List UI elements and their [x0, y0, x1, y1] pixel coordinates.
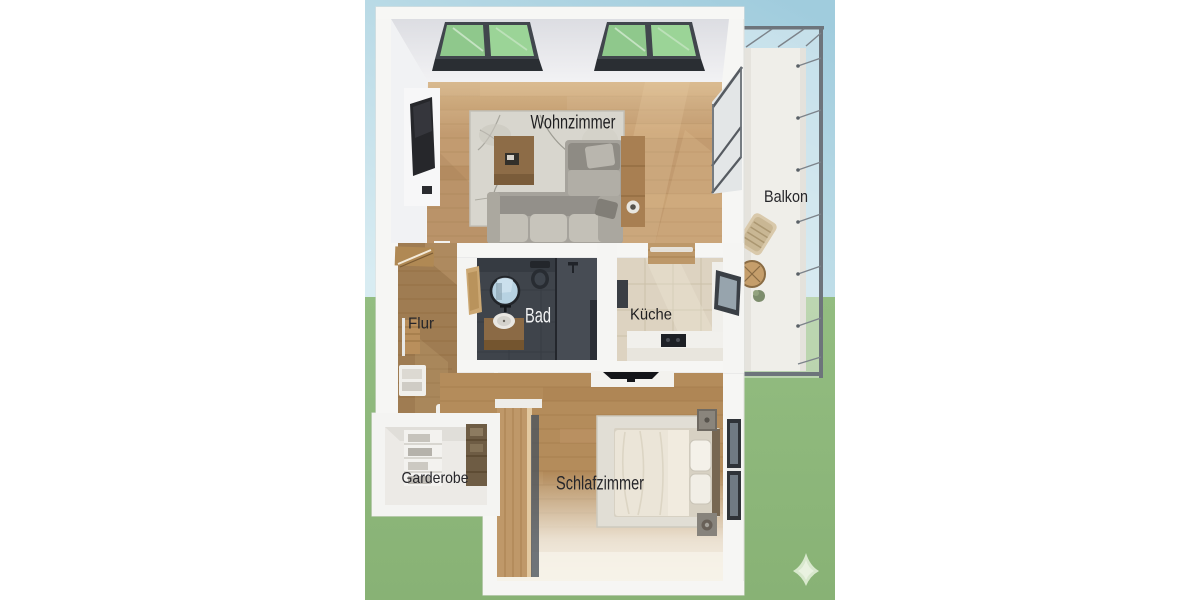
svg-text:Balkon: Balkon	[764, 188, 808, 206]
svg-text:Schlafzimmer: Schlafzimmer	[556, 474, 645, 495]
svg-text:Bad: Bad	[525, 305, 551, 328]
svg-text:Wohnzimmer: Wohnzimmer	[531, 112, 616, 134]
svg-text:Küche: Küche	[630, 307, 672, 324]
svg-text:Flur: Flur	[408, 316, 435, 333]
svg-text:Garderobe: Garderobe	[402, 470, 469, 487]
